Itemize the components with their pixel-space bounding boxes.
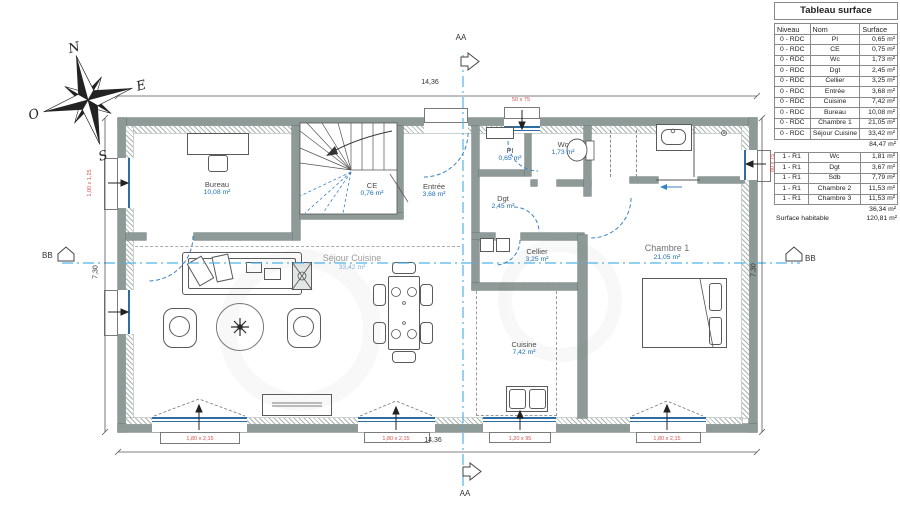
- appliance: [496, 238, 510, 252]
- room-label-ce: CE 0,76 m²: [360, 181, 383, 198]
- table-row: 1 - R1Wc1,81 m²: [775, 152, 898, 162]
- wood-stove: [292, 262, 312, 290]
- bottom-window1-glass: [152, 417, 247, 422]
- surface-habitable-value: 120,81 m²: [866, 215, 897, 222]
- bottom-window4-glass: [630, 417, 706, 422]
- table-row: 0 - RDCWc1,73 m²: [775, 55, 898, 65]
- dimension-bottom: 14,36: [424, 437, 442, 444]
- pi-cabinet: [486, 127, 514, 139]
- front-door-leaf: [424, 108, 468, 123]
- dining-chair: [373, 322, 386, 344]
- rug: [216, 303, 264, 351]
- wall-wc-bottom-a: [531, 180, 537, 186]
- dimension-left: 7,30: [93, 265, 100, 279]
- left-window2-frame: [104, 290, 118, 336]
- surface-table-r1: 1 - R1Wc1,81 m²1 - R1Dgt3,67 m²1 - R1Sdb…: [774, 152, 898, 205]
- bottom-window2-glass: [358, 417, 435, 422]
- window-swing-marks: [154, 399, 703, 416]
- sink-basin: [529, 389, 546, 409]
- wall-bathroom-bottom-b: [698, 177, 744, 183]
- dimension-right: 7,30: [751, 263, 758, 277]
- table-row: 0 - RDCEntrée3,68 m²: [775, 87, 898, 97]
- dining-chair: [420, 322, 433, 344]
- room-label-sejour: Séjour Cuisine 33,42 m²: [323, 253, 382, 272]
- window-size-left: 1,00 x 1,25: [87, 169, 93, 196]
- section-label-aa-bottom: AA: [460, 489, 471, 498]
- table-row: 0 - RDCCE0,75 m²: [775, 45, 898, 55]
- surface-table-rdc: Niveau Nom Surface 0 - RDCPI0,65 m²0 - R…: [774, 23, 898, 140]
- dining-chair: [392, 351, 416, 363]
- bench: [262, 394, 332, 416]
- left-window2-glass: [128, 290, 130, 334]
- side-table: [246, 262, 262, 273]
- right-window-opening: [740, 150, 757, 180]
- table-row: 1 - R1Sdb7,79 m²: [775, 173, 898, 183]
- appliance: [480, 238, 494, 252]
- wall-bureau-bottom-a: [126, 233, 146, 240]
- left-window2-opening: [116, 290, 134, 334]
- wall-bathroom-bottom-a: [630, 177, 658, 183]
- wall-bureau-right: [292, 126, 300, 240]
- table-row: 0 - RDCChambre 121,05 m²: [775, 118, 898, 128]
- bottom-window3-glass: [483, 417, 556, 422]
- dining-chair: [392, 262, 416, 274]
- wall-pi-wc-separator: [525, 126, 531, 176]
- section-label-bb-left: BB: [42, 251, 53, 260]
- wall-stairs-bottom: [300, 213, 403, 219]
- pillow: [709, 317, 722, 345]
- window-size-bottom4: 1,80 x 2,15: [653, 436, 680, 442]
- dining-table: [388, 276, 420, 350]
- vanity-basin: [661, 129, 686, 145]
- window-size-top: 50 x 75: [512, 97, 530, 103]
- table-row: 0 - RDCBureau10,08 m²: [775, 108, 898, 118]
- closet-line: [610, 130, 611, 177]
- compass-south-label: S: [97, 148, 110, 165]
- r1-subtotal: 36,34 m²: [774, 205, 898, 214]
- table-row: 1 - R1Chambre 311,53 m²: [775, 194, 898, 204]
- ceiling-change-line: [135, 246, 460, 247]
- wall-central: [578, 235, 587, 418]
- compass-rose: N E S O: [20, 30, 160, 175]
- staircase: [300, 123, 408, 214]
- room-label-chambre1: Chambre 1 21,05 m²: [645, 243, 690, 262]
- compass-north-label: N: [66, 39, 82, 57]
- sink-basin: [509, 389, 526, 409]
- room-label-entree: Entrée 3,68 m²: [422, 182, 445, 199]
- table-row: 0 - RDCSéjour Cuisine33,42 m²: [775, 129, 898, 139]
- section-arrow-bb: [58, 247, 802, 261]
- pillow: [709, 283, 722, 311]
- window-size-bottom2: 1,80 x 2,15: [382, 436, 409, 442]
- room-label-cuisine: Cuisine 7,42 m²: [511, 340, 536, 357]
- window-size-bottom1: 1,80 x 2,15: [186, 436, 213, 442]
- desk-chair: [208, 155, 228, 172]
- wall-dgt-bottom-b: [521, 233, 584, 240]
- surface-habitable-label: Surface habitable: [776, 215, 829, 222]
- table-row: 0 - RDCCuisine7,42 m²: [775, 97, 898, 107]
- wall-bureau-bottom-b: [194, 233, 292, 240]
- column-nom: Nom: [810, 24, 860, 35]
- surface-table-title: Tableau surface: [774, 2, 898, 20]
- desk: [187, 133, 249, 155]
- wall-wc-right: [584, 126, 591, 196]
- section-label-bb-right: BB: [805, 254, 816, 263]
- rdc-subtotal: 84,47 m²: [774, 140, 898, 149]
- floor-plan-sheet: N E S O: [0, 0, 900, 514]
- section-label-aa-top: AA: [456, 33, 467, 42]
- window-size-bottom3: 1,20 x 95: [509, 436, 532, 442]
- column-surface: Surface: [860, 24, 898, 35]
- right-window-glass: [744, 150, 746, 180]
- table-row: 1 - R1Chambre 211,53 m²: [775, 184, 898, 194]
- under-stairs-ce: [300, 172, 351, 213]
- right-window-frame: [757, 150, 771, 182]
- table-header-row: Niveau Nom Surface: [775, 24, 898, 35]
- side-table: [264, 268, 281, 280]
- compass-west-label: O: [27, 106, 42, 123]
- room-label-wc: Wc 1,73 m²: [551, 140, 574, 157]
- top-window-frame: [504, 107, 540, 119]
- room-label-bureau: Bureau 10,08 m²: [204, 180, 231, 197]
- room-label-pi: PI 0,65 m²: [498, 146, 521, 163]
- dining-chair: [420, 284, 433, 306]
- table-row: 0 - RDCDgt2,45 m²: [775, 66, 898, 76]
- table-row: 1 - R1Dgt3,67 m²: [775, 163, 898, 173]
- surface-habitable-row: Surface habitable 120,81 m²: [774, 214, 898, 222]
- closet-line: [636, 130, 637, 177]
- room-label-cellier: Cellier 3,25 m²: [525, 247, 548, 264]
- wall-pi-bottom: [479, 170, 525, 176]
- table-row: 0 - RDCCellier3,25 m²: [775, 76, 898, 86]
- dining-chair: [373, 284, 386, 306]
- compass-east-label: E: [134, 78, 149, 95]
- armchair-seat: [293, 316, 314, 337]
- room-label-dgt: Dgt 2,45 m²: [491, 194, 514, 211]
- wall-entree-right: [472, 126, 479, 233]
- surface-table: Tableau surface Niveau Nom Surface 0 - R…: [774, 2, 898, 222]
- armchair-seat: [169, 316, 190, 337]
- column-niveau: Niveau: [775, 24, 811, 35]
- wall-stairs-right: [397, 126, 403, 218]
- table-row: 0 - RDCPI0,65 m²: [775, 35, 898, 45]
- dimension-top: 14,36: [421, 79, 439, 86]
